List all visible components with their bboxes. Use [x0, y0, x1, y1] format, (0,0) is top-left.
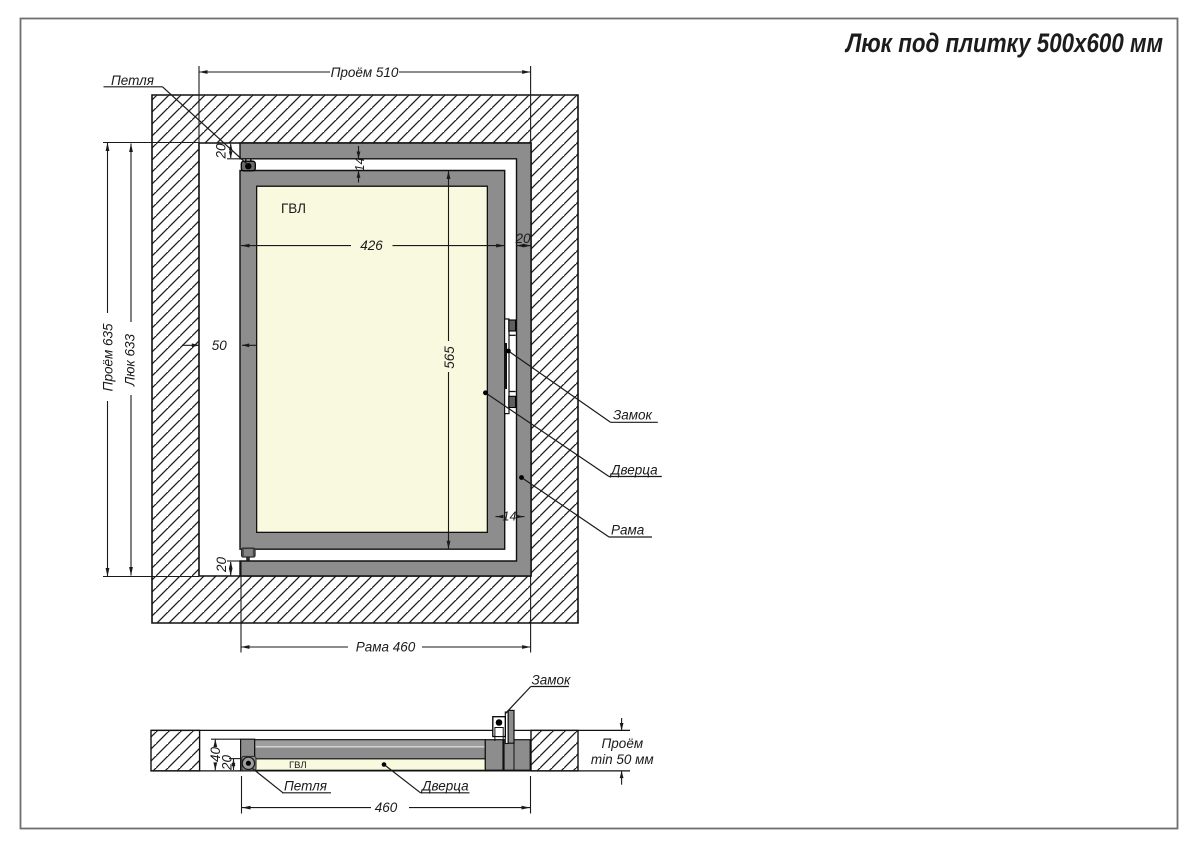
svg-text:Рама: Рама	[611, 523, 645, 538]
svg-text:14: 14	[353, 158, 367, 172]
svg-text:Дверца: Дверца	[420, 779, 469, 794]
svg-text:Рама 460: Рама 460	[356, 640, 416, 655]
svg-text:460: 460	[375, 800, 398, 815]
svg-text:Проём 635: Проём 635	[101, 323, 116, 391]
svg-text:ГВЛ: ГВЛ	[289, 760, 307, 771]
svg-text:Петля: Петля	[284, 779, 327, 794]
svg-text:Проём: Проём	[602, 736, 644, 751]
svg-text:Дверца: Дверца	[609, 463, 658, 478]
svg-text:Проём 510: Проём 510	[331, 65, 399, 80]
svg-text:Замок: Замок	[532, 672, 572, 687]
svg-text:50: 50	[212, 338, 228, 353]
svg-text:426: 426	[360, 238, 383, 253]
svg-text:20: 20	[219, 755, 234, 772]
svg-text:Люк 633: Люк 633	[123, 333, 138, 387]
svg-text:20: 20	[214, 557, 229, 574]
svg-text:min 50 мм: min 50 мм	[591, 752, 654, 767]
svg-text:14: 14	[503, 510, 517, 524]
svg-text:20: 20	[514, 231, 531, 246]
svg-text:ГВЛ: ГВЛ	[281, 201, 306, 216]
svg-text:565: 565	[442, 346, 457, 369]
svg-text:Замок: Замок	[613, 408, 653, 423]
svg-text:Люк под плитку 500х600 мм: Люк под плитку 500х600 мм	[844, 28, 1163, 58]
svg-text:Петля: Петля	[111, 73, 154, 88]
